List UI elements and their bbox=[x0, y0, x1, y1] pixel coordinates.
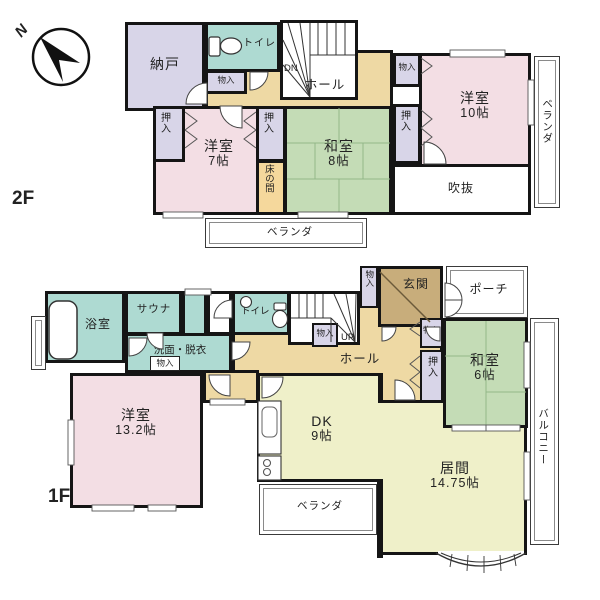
washitsu8-label: 和室 8帖 bbox=[300, 138, 378, 168]
storage-stairs-label: 物入 bbox=[312, 329, 338, 339]
yoshitsu10-size: 10帖 bbox=[430, 106, 520, 120]
storage-right-2f-label: 物入 bbox=[393, 63, 421, 73]
closet-yoshitsu10-label: 押入 bbox=[398, 110, 410, 160]
dk-name: DK bbox=[290, 413, 354, 429]
senmen-label: 洗面・脱衣 bbox=[135, 344, 225, 356]
genkan-label: 玄関 bbox=[392, 278, 440, 292]
floor1-label: 1F bbox=[48, 486, 70, 508]
vestibule-1f bbox=[207, 291, 232, 335]
storage-senmen-label: 物入 bbox=[150, 359, 180, 369]
storage-right-1f-label: 物入 bbox=[420, 326, 443, 336]
porch-label: ポーチ bbox=[462, 283, 516, 297]
room-senmen-upper bbox=[182, 291, 207, 337]
yoshitsu13-name: 洋室 bbox=[90, 407, 182, 423]
ima-size: 14.75帖 bbox=[410, 476, 500, 490]
closet-yoshitsu7-label: 押入 bbox=[158, 112, 170, 158]
washitsu8-name: 和室 bbox=[300, 138, 378, 154]
hall-1f-label: ホール bbox=[328, 352, 392, 366]
compass-north-label: N bbox=[12, 20, 33, 40]
bath-bay-window bbox=[31, 316, 46, 370]
closet-mid-2f-label: 押入 bbox=[261, 112, 273, 158]
toilet-2f-label: トイレ bbox=[243, 38, 276, 50]
storage-under-toilet-label: 物入 bbox=[205, 76, 247, 86]
dk-label: DK 9帖 bbox=[290, 413, 354, 443]
dk-size: 9帖 bbox=[290, 429, 354, 443]
toilet-1f-label: トイレ bbox=[241, 307, 270, 318]
veranda-2f-bottom-label: ベランダ bbox=[250, 226, 330, 238]
ima-label: 居間 14.75帖 bbox=[410, 460, 500, 490]
veranda-2f-right-label: ベランダ bbox=[541, 98, 553, 168]
stair-up-label: UP bbox=[341, 333, 354, 344]
wall-segment-dk-hall bbox=[378, 373, 383, 403]
sauna-label: サウナ bbox=[128, 303, 180, 315]
closet-1f-label: 押入 bbox=[425, 356, 437, 398]
yoshitsu13-size: 13.2帖 bbox=[90, 423, 182, 437]
storage-genkan-left-label: 物入 bbox=[364, 270, 374, 306]
washitsu6-size: 6帖 bbox=[452, 368, 518, 382]
hall-2f-label: ホール bbox=[285, 78, 365, 92]
stair-dn-label: DN bbox=[284, 64, 298, 75]
floor-plan: 納戸 トイレ 物入 DN ホール 洋室 7帖 押入 押入 床の間 和室 8帖 物… bbox=[0, 0, 600, 600]
wall-segment-ima-left bbox=[377, 479, 383, 558]
fukinuke-label: 吹抜 bbox=[425, 182, 497, 196]
tokonoma-label: 床の間 bbox=[262, 164, 273, 212]
compass-icon bbox=[33, 29, 89, 85]
washitsu8-size: 8帖 bbox=[300, 154, 378, 168]
washitsu6-label: 和室 6帖 bbox=[452, 352, 518, 382]
balcony-label: バルコニー bbox=[537, 408, 549, 508]
room-yoshitsu13 bbox=[70, 373, 203, 508]
ima-name: 居間 bbox=[410, 460, 500, 476]
yoshitsu10-label: 洋室 10帖 bbox=[430, 90, 520, 120]
yoshitsu10-name: 洋室 bbox=[430, 90, 520, 106]
bath-label: 浴室 bbox=[72, 318, 124, 332]
washitsu6-name: 和室 bbox=[452, 352, 518, 368]
yoshitsu7-label: 洋室 7帖 bbox=[165, 138, 273, 168]
veranda-1f-label: ベランダ bbox=[280, 500, 360, 512]
yoshitsu13-label: 洋室 13.2帖 bbox=[90, 407, 182, 437]
nando-label: 納戸 bbox=[125, 56, 205, 72]
floor2-label: 2F bbox=[12, 188, 34, 210]
yoshitsu7-name: 洋室 bbox=[165, 138, 273, 154]
hall-corridor-1f bbox=[203, 370, 259, 403]
yoshitsu7-size: 7帖 bbox=[165, 154, 273, 168]
